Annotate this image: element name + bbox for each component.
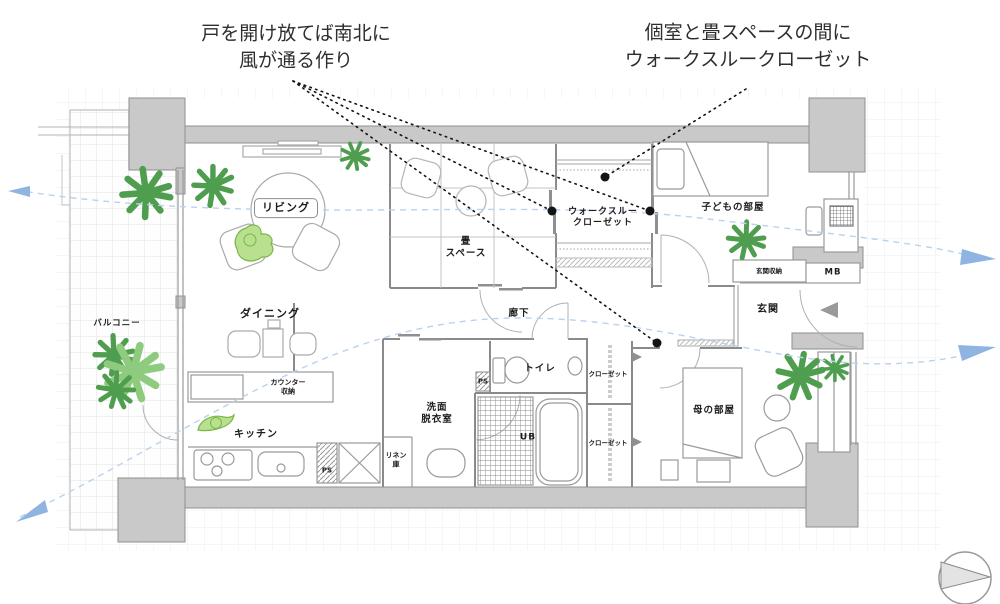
- room-label-kids: 子どもの部屋: [701, 202, 764, 214]
- room-label-living: リビング: [254, 198, 318, 218]
- annotation-right: 個室と畳スペースの間に ウォークスルークローゼット: [625, 19, 871, 72]
- room-label-counter: カウンター 収納: [271, 378, 306, 396]
- wind-arrowhead-icon: [16, 500, 48, 522]
- annotation-left: 戸を開け放てば南北に 風が通る作り: [201, 20, 391, 73]
- room-label-mother: 母の部屋: [693, 405, 735, 417]
- counter-storage: [188, 372, 333, 402]
- room-label-hallway: 廊下: [508, 308, 529, 320]
- floorplan-page: 戸を開け放てば南北に 風が通る作り 個室と畳スペースの間に ウォークスルークロー…: [0, 0, 1000, 604]
- room-label-entrance: 玄関: [757, 304, 779, 317]
- room-label-wtc: ウォークスルー クローゼット: [568, 207, 638, 230]
- wind-arrowhead-icon: [8, 186, 30, 197]
- wind-arrowhead-icon: [960, 249, 996, 265]
- floorplan-canvas: [0, 0, 1000, 604]
- room-label-entrance-storage: 玄関収納: [756, 267, 782, 275]
- room-label-kitchen: キッチン: [234, 429, 278, 442]
- room-label-dining: ダイニング: [240, 307, 300, 321]
- room-label-washroom: 洗面 脱衣室: [421, 402, 453, 426]
- room-label-closet-upper: クローゼット: [589, 370, 628, 378]
- compass-icon: [939, 552, 991, 604]
- room-label-ps-toilet: PS: [478, 378, 488, 387]
- room-label-toilet: トイレ: [524, 363, 556, 375]
- wind-arrowhead-icon: [958, 345, 996, 361]
- room-label-closet-lower: クローゼット: [589, 439, 628, 447]
- room-label-linen: リネン 庫: [386, 451, 407, 469]
- room-label-balcony: バルコニー: [93, 319, 140, 330]
- room-label-mb: MB: [825, 268, 842, 279]
- room-label-tatami: 畳 スペース: [446, 236, 487, 260]
- room-label-ps-kitchen: PS: [322, 467, 332, 476]
- room-label-ub: UB: [520, 432, 536, 443]
